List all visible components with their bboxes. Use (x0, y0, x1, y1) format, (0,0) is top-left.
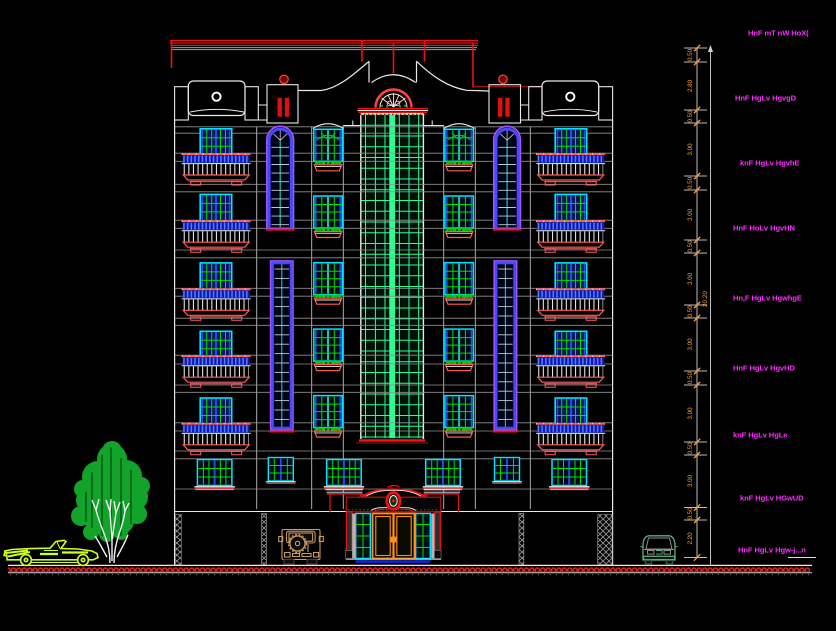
svg-text:0.50: 0.50 (687, 507, 694, 520)
svg-text:0.50: 0.50 (687, 240, 694, 253)
svg-text:3.00: 3.00 (687, 143, 694, 156)
svg-text:HnF mT nW HoX(: HnF mT nW HoX( (748, 29, 809, 38)
svg-text:HnF HgLv HgvgD: HnF HgLv HgvgD (735, 94, 797, 103)
svg-text:HnF HoLv HgvHN: HnF HoLv HgvHN (733, 224, 795, 233)
svg-text:3.00: 3.00 (687, 338, 694, 351)
svg-text:3.00: 3.00 (687, 272, 694, 285)
svg-text:3.00: 3.00 (687, 407, 694, 420)
svg-text:3.00: 3.00 (687, 474, 694, 487)
svg-text:3.00: 3.00 (687, 208, 694, 221)
svg-text:2.80: 2.80 (687, 79, 694, 92)
svg-text:knF HgLv HgvhE: knF HgLv HgvhE (740, 159, 799, 168)
svg-text:0.50: 0.50 (687, 48, 694, 61)
svg-text:knF HgLv HGwUD: knF HgLv HGwUD (740, 494, 804, 503)
svg-text:20.20: 20.20 (702, 291, 709, 307)
svg-text:0.50: 0.50 (687, 442, 694, 455)
svg-text:0.50: 0.50 (687, 305, 694, 318)
svg-text:0.50: 0.50 (687, 371, 694, 384)
svg-text:2.20: 2.20 (687, 532, 694, 545)
svg-text:0.50: 0.50 (687, 176, 694, 189)
svg-text:HnF HgLv Hgw-j...n: HnF HgLv Hgw-j...n (738, 546, 806, 555)
svg-text:0.50: 0.50 (687, 110, 694, 123)
svg-text:HnF HgLv HgvHD: HnF HgLv HgvHD (733, 364, 795, 373)
svg-text:Hn,F HgLv HgwhgE: Hn,F HgLv HgwhgE (733, 294, 802, 303)
svg-text:knF HgLv HgLe: knF HgLv HgLe (733, 431, 787, 440)
